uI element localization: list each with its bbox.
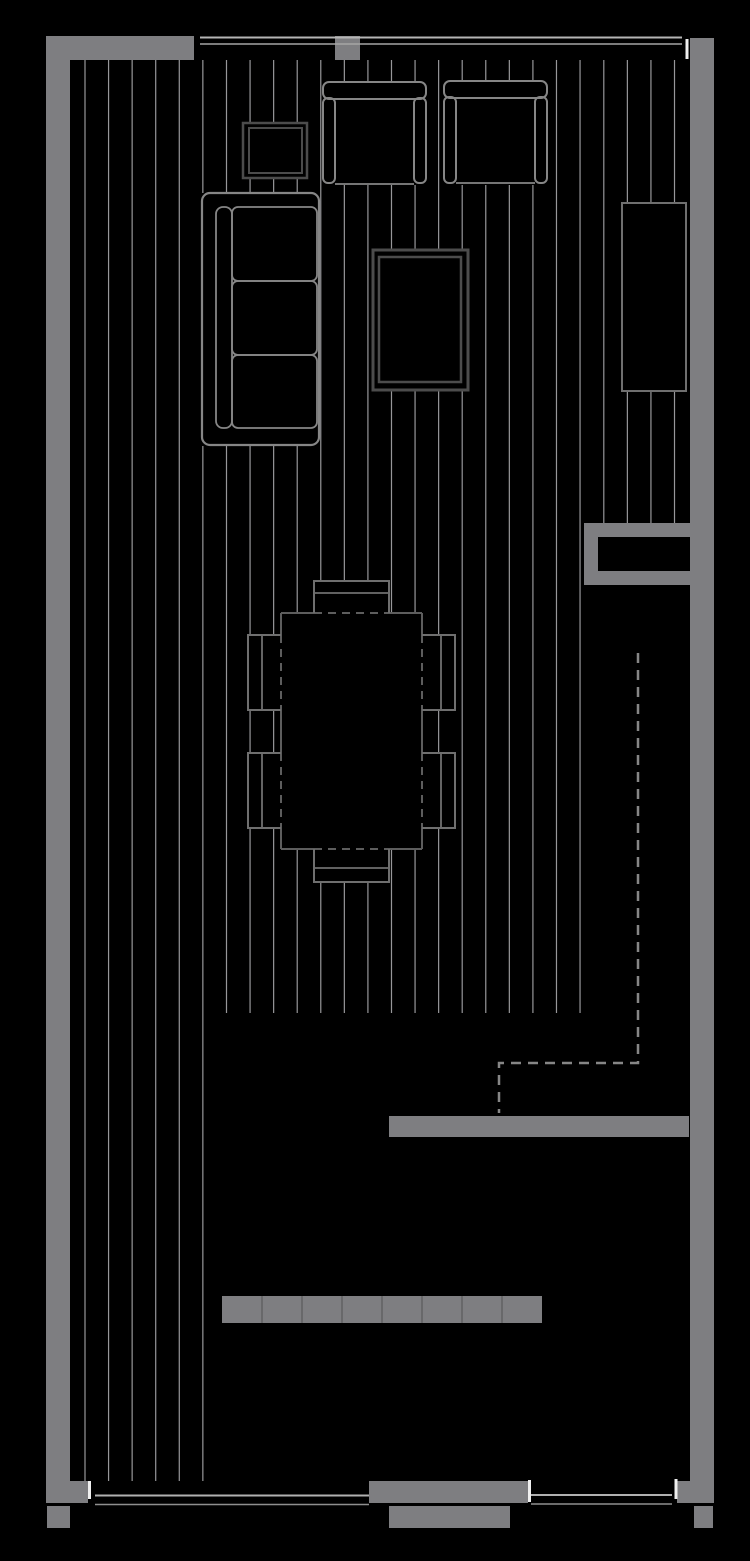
dining-chair-left-lower-fill — [248, 753, 281, 828]
dining-chair-right-upper-fill — [422, 635, 455, 710]
armchair-1-fill — [323, 82, 426, 185]
wall-left-stub — [70, 1481, 88, 1503]
cabinet-right — [622, 203, 686, 391]
wall-right-step — [677, 1481, 690, 1503]
dining-chair-left-upper-fill — [248, 635, 281, 710]
floorplan-canvas — [0, 0, 750, 1561]
floorplan-page — [0, 0, 750, 1561]
step-bottom — [389, 1506, 510, 1528]
armchair-2-fill — [444, 81, 547, 185]
tv-table — [373, 250, 468, 390]
side-table — [243, 123, 307, 178]
wall-bottom-center — [369, 1481, 528, 1503]
upper-floor-dashed-outline — [499, 653, 638, 1113]
wall-left — [46, 36, 70, 1503]
sofa-fill — [202, 193, 319, 446]
dining-table-fill — [281, 613, 422, 849]
entry-niche-inner — [598, 537, 690, 571]
wall-middle-bottom — [389, 1116, 689, 1137]
wall-right-footing — [694, 1506, 713, 1528]
window-post-top — [335, 36, 360, 60]
wall-right — [690, 38, 714, 1503]
dining-bench-bottom-fill — [314, 849, 389, 882]
wall-left-footing — [47, 1506, 70, 1528]
dining-chair-right-lower-fill — [422, 753, 455, 828]
dining-bench-top-fill — [314, 581, 389, 613]
